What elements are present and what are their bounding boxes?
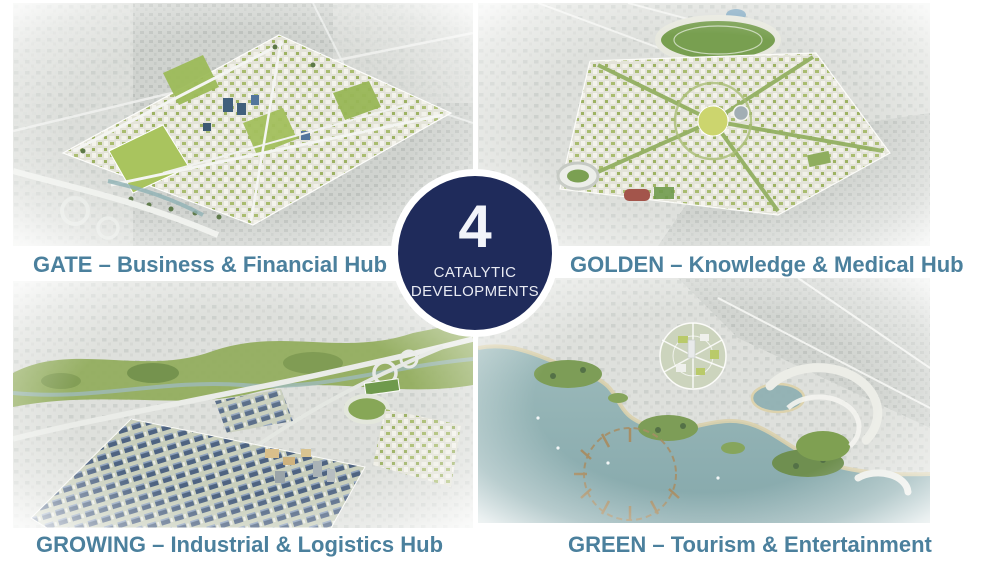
catalytic-developments-badge: 4 CATALYTIC DEVELOPMENTS (391, 169, 559, 337)
caption-gate: GATE – Business & Financial Hub (33, 253, 387, 277)
caption-growing: GROWING – Industrial & Logistics Hub (36, 533, 443, 557)
catalytic-developments-slide: GATE – Business & Financial Hub GOLDEN –… (0, 0, 1000, 562)
badge-label-line1: CATALYTIC (434, 263, 517, 282)
badge-label-line2: DEVELOPMENTS (411, 282, 539, 301)
growing-aerial-image (13, 281, 473, 528)
badge-number: 4 (458, 198, 491, 256)
caption-green: GREEN – Tourism & Entertainment (568, 533, 932, 557)
green-aerial-image (478, 278, 930, 523)
caption-golden: GOLDEN – Knowledge & Medical Hub (570, 253, 964, 277)
green-aerial-art (478, 278, 930, 523)
growing-aerial-art (13, 281, 473, 528)
